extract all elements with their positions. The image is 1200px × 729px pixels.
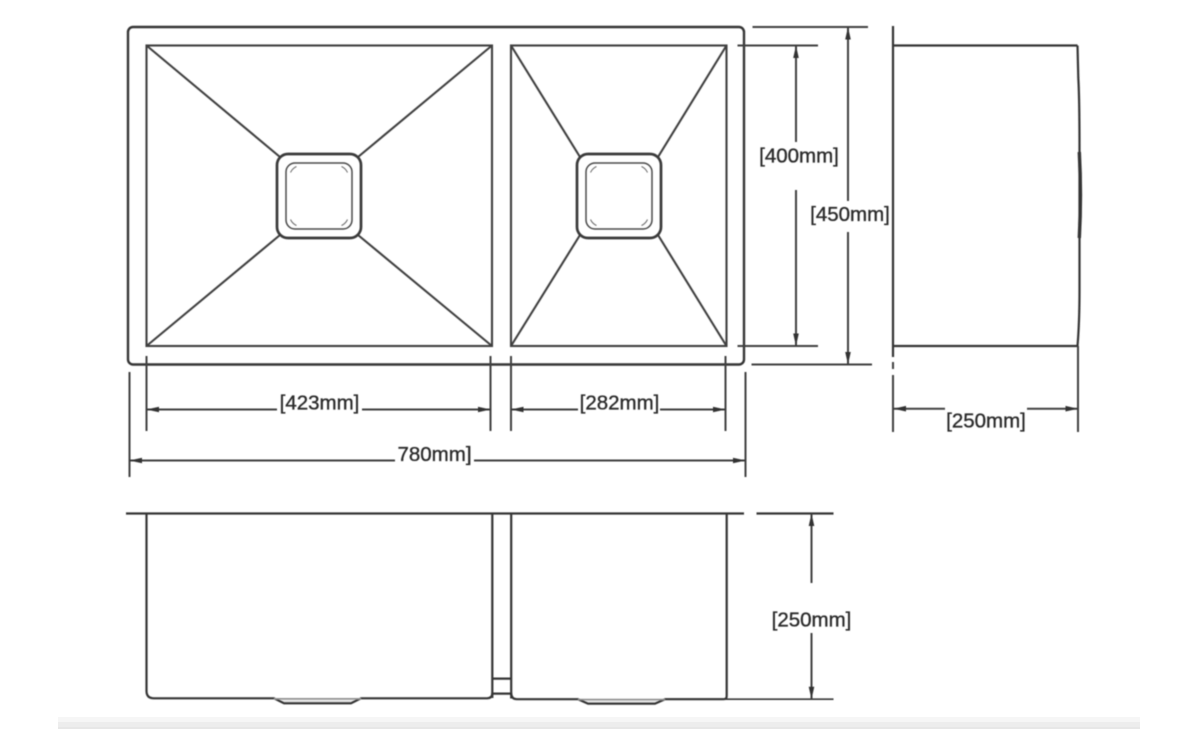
svg-text:[282mm]: [282mm] — [580, 392, 660, 415]
svg-text:[250mm]: [250mm] — [946, 410, 1026, 433]
svg-text:[400mm]: [400mm] — [759, 145, 839, 168]
svg-text:780mm]: 780mm] — [397, 443, 471, 466]
svg-text:[450mm]: [450mm] — [810, 203, 890, 226]
svg-text:[423mm]: [423mm] — [280, 392, 360, 415]
svg-text:[250mm]: [250mm] — [772, 609, 852, 632]
